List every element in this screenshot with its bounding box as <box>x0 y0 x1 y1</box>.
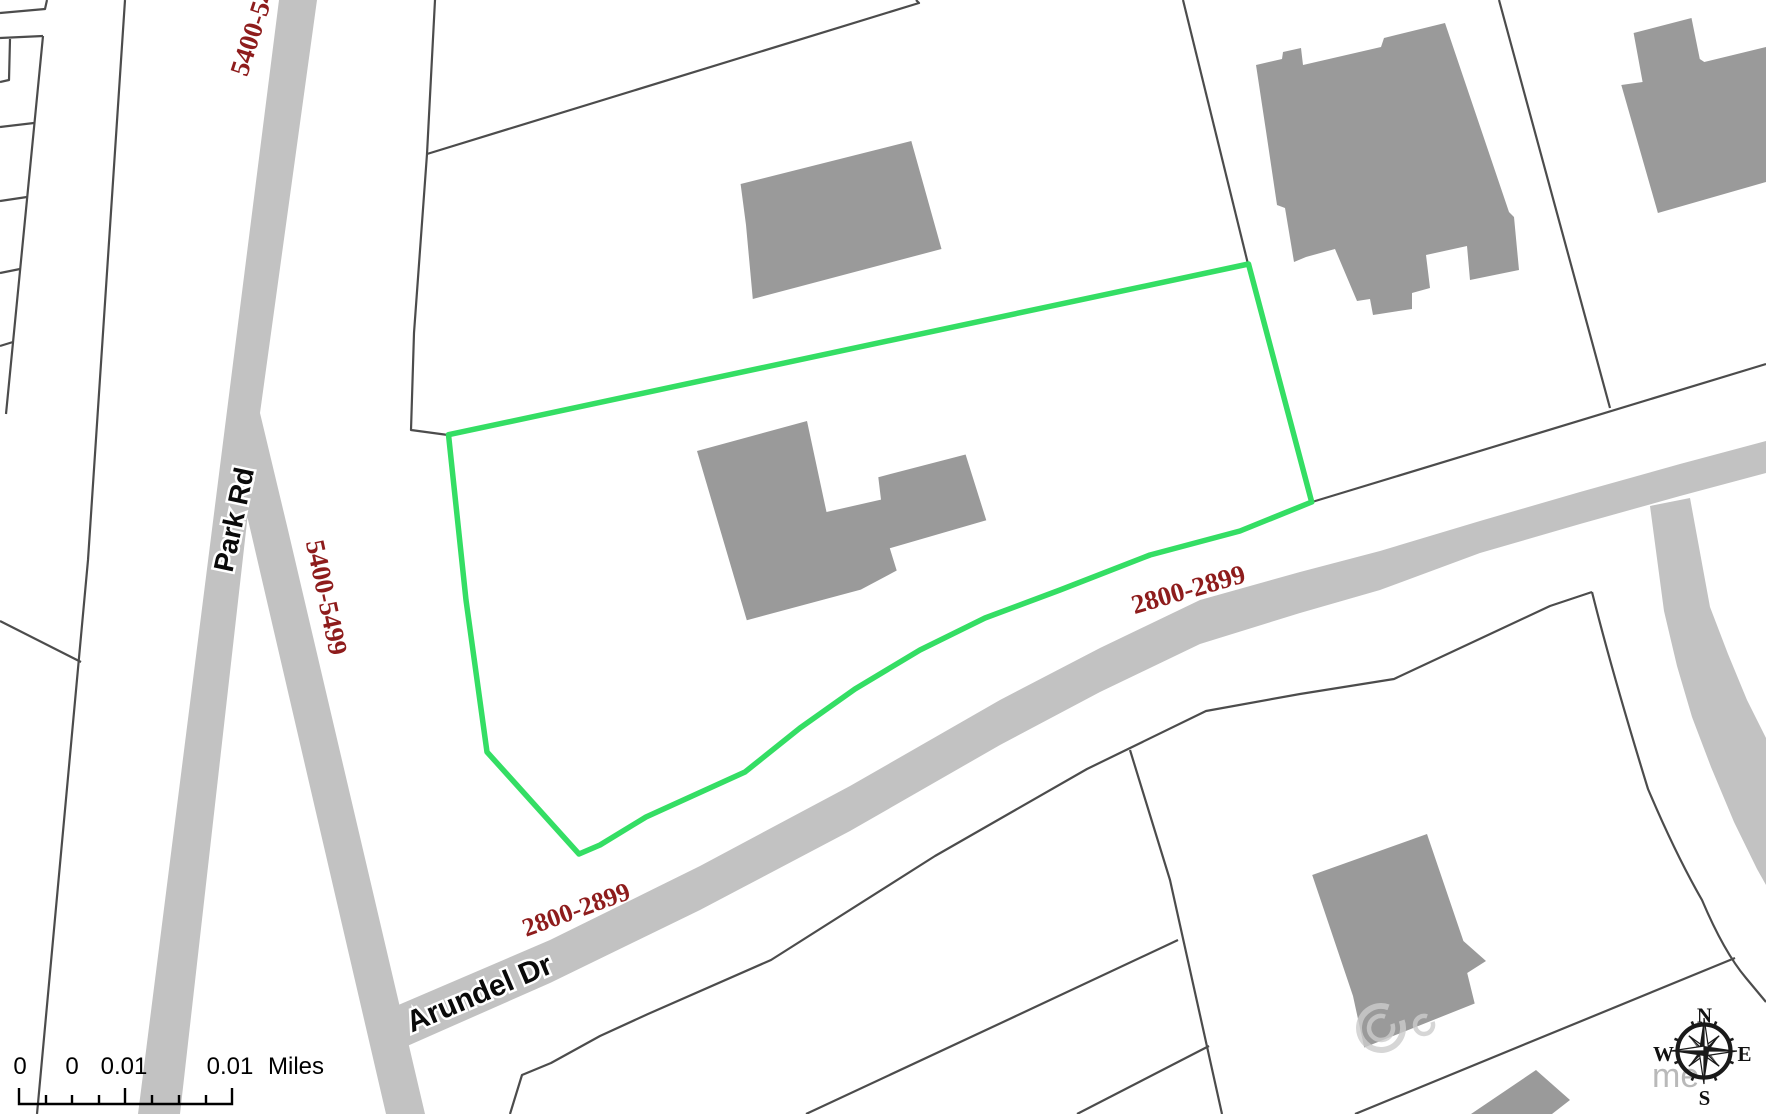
svg-text:0: 0 <box>13 1053 26 1080</box>
svg-text:0: 0 <box>65 1053 78 1080</box>
svg-text:W: W <box>1653 1042 1674 1066</box>
svg-text:E: E <box>1737 1042 1751 1066</box>
svg-text:Miles: Miles <box>268 1053 324 1080</box>
svg-text:0.01: 0.01 <box>101 1053 148 1080</box>
svg-text:S: S <box>1699 1086 1711 1110</box>
svg-text:N: N <box>1697 1004 1712 1028</box>
svg-text:0.01: 0.01 <box>207 1053 254 1080</box>
